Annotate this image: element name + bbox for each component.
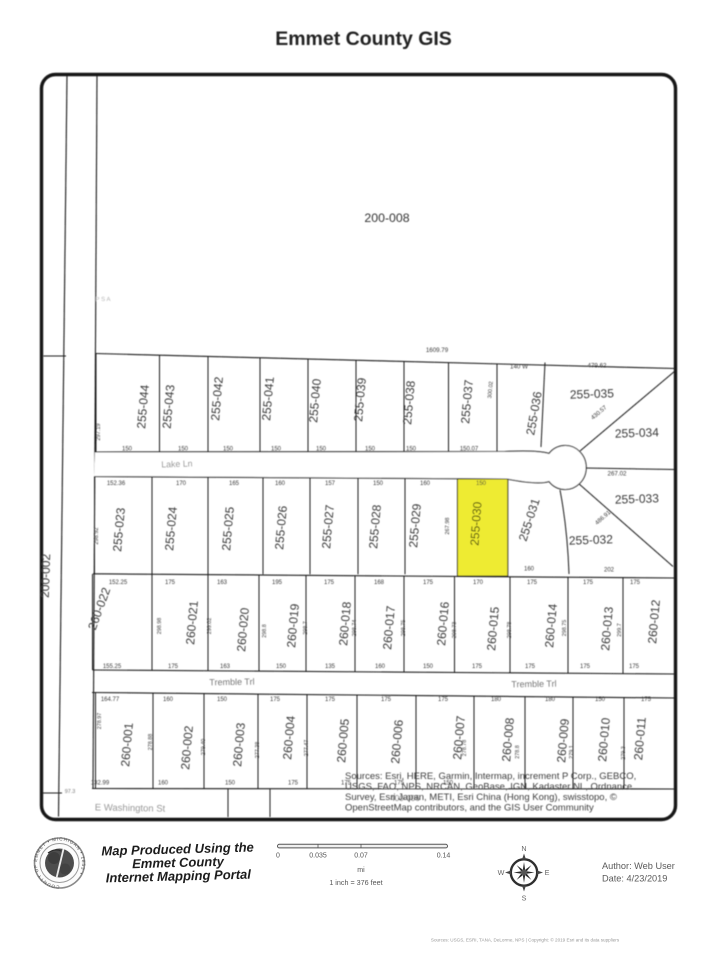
svg-text:175: 175 [423,580,434,586]
svg-text:OpenStreetMap contributors, an: OpenStreetMap contributors, and the GIS … [345,803,594,814]
svg-text:150: 150 [217,697,228,703]
svg-text:175: 175 [580,664,591,670]
svg-text:298.98: 298.98 [157,618,163,635]
svg-text:150: 150 [276,664,287,670]
svg-text:mi: mi [357,867,365,874]
svg-text:278.8: 278.8 [515,745,521,759]
svg-text:150: 150 [406,447,417,453]
svg-text:140 W: 140 W [510,364,528,371]
svg-text:150: 150 [271,447,282,453]
svg-text:278.78: 278.78 [462,740,468,757]
svg-text:Tremble Trl: Tremble Trl [511,679,556,690]
svg-text:298.75: 298.75 [562,620,568,637]
svg-text:Tremble Trl: Tremble Trl [209,677,254,688]
svg-text:165: 165 [229,481,240,487]
svg-text:168: 168 [374,580,385,586]
svg-text:160: 160 [375,664,386,670]
svg-text:Author: Web User: Author: Web User [602,861,675,871]
svg-text:299.02: 299.02 [207,618,213,635]
svg-text:175: 175 [288,781,299,787]
svg-text:175: 175 [270,697,281,703]
svg-text:Lake Ln: Lake Ln [161,458,193,469]
svg-text:255-033: 255-033 [615,491,660,507]
svg-text:150: 150 [178,447,189,453]
svg-text:150: 150 [476,481,487,487]
svg-text:175: 175 [630,580,641,586]
svg-text:160: 160 [275,481,286,487]
svg-text:170: 170 [176,481,187,487]
svg-text:164.77: 164.77 [101,697,120,703]
svg-text:W: W [498,868,505,877]
svg-text:255-032: 255-032 [569,532,614,548]
svg-text:297.19: 297.19 [96,423,102,440]
svg-text:N: N [521,844,526,853]
svg-text:267.98: 267.98 [445,517,451,534]
svg-text:279.40: 279.40 [201,739,207,756]
svg-text:157: 157 [325,481,336,487]
svg-text:278.88: 278.88 [148,734,154,751]
svg-text:279.3: 279.3 [621,746,627,760]
svg-text:0.035: 0.035 [309,853,327,860]
svg-text:0: 0 [276,853,280,860]
svg-text:298.74: 298.74 [352,620,358,637]
svg-text:255-035: 255-035 [570,386,615,402]
svg-text:150: 150 [423,664,434,670]
svg-text:150: 150 [223,447,234,453]
svg-text:267.02: 267.02 [608,471,627,478]
svg-text:160: 160 [163,697,174,703]
svg-text:175: 175 [525,664,536,670]
svg-text:Sources: Esri, HERE, Garmin, I: Sources: Esri, HERE, Garmin, Intermap, i… [345,771,636,782]
svg-text:200-008: 200-008 [364,211,409,225]
svg-text:278.97: 278.97 [97,713,103,730]
svg-text:Emmet County GIS: Emmet County GIS [275,28,452,50]
svg-text:298.75: 298.75 [401,620,407,637]
svg-text:150: 150 [365,447,376,453]
svg-text:163: 163 [220,664,231,670]
svg-text:USGS, FAO, NPS, NRCAN, GeoBase: USGS, FAO, NPS, NRCAN, GeoBase, IGN, Kad… [345,782,632,793]
svg-text:150: 150 [316,447,327,453]
svg-text:175: 175 [324,580,335,586]
svg-text:170: 170 [473,580,484,586]
svg-text:277.47: 277.47 [304,740,310,757]
svg-text:175: 175 [438,697,449,703]
svg-text:255-034: 255-034 [615,425,660,441]
svg-text:152.36: 152.36 [107,481,126,487]
svg-text:298.8: 298.8 [262,624,268,638]
svg-text:0.07: 0.07 [354,853,368,860]
svg-text:P S A: P S A [95,297,110,303]
svg-text:1 inch = 376 feet: 1 inch = 376 feet [329,878,382,887]
svg-text:479.62: 479.62 [588,363,607,370]
svg-text:150: 150 [225,781,236,787]
svg-text:E Washington St: E Washington St [95,802,166,814]
svg-text:150.07: 150.07 [460,447,479,453]
svg-text:279.1: 279.1 [569,745,575,759]
svg-text:160: 160 [158,781,169,787]
svg-text:298.78: 298.78 [507,622,513,639]
svg-text:0.14: 0.14 [437,853,451,860]
svg-text:155.25: 155.25 [103,664,122,670]
svg-text:298.73: 298.73 [452,622,458,639]
svg-text:175: 175 [641,697,652,703]
svg-text:175: 175 [527,580,538,586]
svg-text:299.7: 299.7 [617,623,623,637]
svg-text:1609.79: 1609.79 [426,347,449,354]
svg-text:163: 163 [217,580,228,586]
svg-text:160: 160 [524,567,535,573]
svg-text:150: 150 [122,447,133,453]
svg-text:E: E [545,868,550,877]
svg-text:97.3: 97.3 [65,789,76,795]
svg-text:132.99: 132.99 [91,781,110,787]
svg-text:200-002: 200-002 [38,553,54,598]
svg-text:Date: 4/23/2019: Date: 4/23/2019 [602,874,667,884]
svg-text:175: 175 [165,580,176,586]
svg-text:202: 202 [604,568,615,574]
svg-text:180: 180 [545,697,556,703]
svg-text:152.25: 152.25 [109,580,128,586]
svg-text:135: 135 [325,664,336,670]
svg-text:Survey, Esri Japan, METI, Esri: Survey, Esri Japan, METI, Esri China (Ho… [345,792,617,803]
svg-text:298.92: 298.92 [94,527,100,544]
svg-text:150: 150 [373,481,384,487]
svg-text:150: 150 [595,697,606,703]
svg-text:175: 175 [472,664,483,670]
svg-text:S: S [522,894,527,903]
svg-text:298.7: 298.7 [303,621,309,635]
svg-text:Sources: USGS, ESRI, TANA, DeL: Sources: USGS, ESRI, TANA, DeLorme, NPS … [431,937,620,943]
svg-text:160: 160 [420,481,431,487]
svg-text:175: 175 [325,697,336,703]
svg-text:277.38: 277.38 [255,742,261,759]
svg-text:195: 195 [272,580,283,586]
svg-text:175: 175 [583,580,594,586]
svg-text:175: 175 [381,697,392,703]
svg-text:180: 180 [491,697,502,703]
svg-text:175: 175 [629,664,640,670]
svg-text:175: 175 [168,664,179,670]
